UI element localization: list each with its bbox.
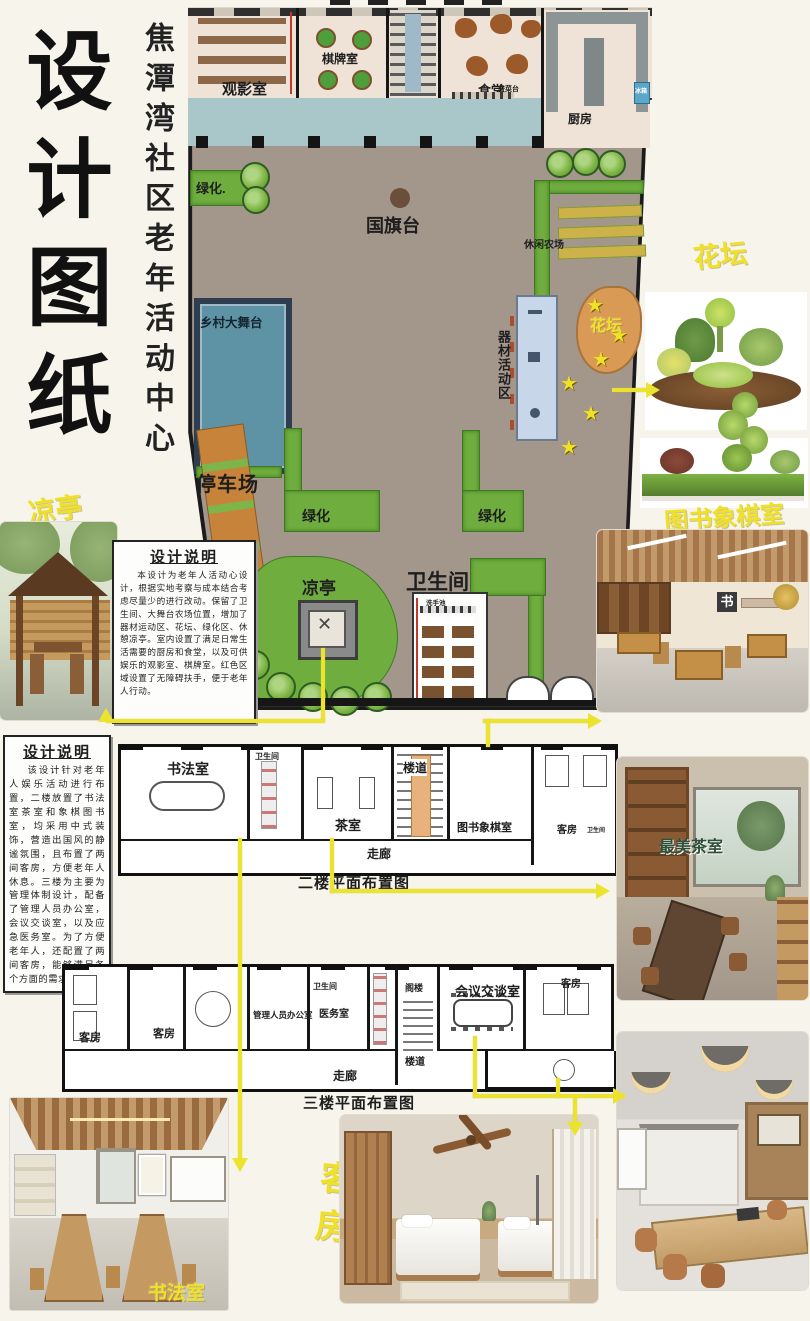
wall	[301, 747, 304, 839]
dome-lamp	[631, 1072, 671, 1094]
f3-meeting-label: 会议交谈室	[455, 981, 520, 1000]
wall	[447, 747, 450, 839]
bookshelf	[597, 582, 671, 634]
tree	[546, 150, 574, 178]
chess-table	[352, 30, 372, 50]
design-note-2: 设计说明 该设计针对老年人娱乐活动进行布置，二楼放置了书法室茶室和象棋图书室，均…	[3, 735, 111, 993]
bed	[396, 1219, 480, 1275]
serving-counter-label: 盛菜台	[498, 84, 519, 94]
wall	[523, 967, 526, 1049]
pavilion-photo	[0, 522, 117, 720]
greenery-label-3: 绿化	[478, 506, 506, 526]
pavilion-bench	[70, 654, 84, 694]
poster-wall	[14, 1154, 56, 1216]
kitchen-counter-top	[546, 12, 648, 24]
pavilion-table	[34, 642, 82, 652]
dome-lamp	[701, 1046, 749, 1072]
hedge	[284, 490, 380, 532]
rug	[400, 1281, 570, 1301]
f3-attic-label: 阁楼	[405, 981, 423, 994]
wood-table	[747, 634, 787, 658]
flowerbed-photo-label: 花坛	[691, 231, 749, 275]
hedge	[470, 558, 546, 596]
canteen-table	[455, 18, 477, 38]
wall	[438, 8, 441, 98]
equipment-area	[516, 295, 558, 441]
connector-line	[612, 388, 646, 392]
shrub	[770, 450, 800, 474]
guest-room-photo	[340, 1115, 598, 1303]
pavilion-roof	[8, 552, 108, 596]
wall	[367, 967, 370, 1049]
wood-table	[675, 650, 723, 680]
connector-line	[321, 648, 325, 722]
pavilion-icon-cross: ✕	[317, 614, 332, 635]
stair-bench	[777, 897, 808, 1000]
extension-room	[485, 1051, 617, 1090]
plant	[693, 362, 753, 388]
connector-line	[556, 1078, 560, 1098]
tea-room-photo: 最美茶室	[617, 757, 808, 1000]
wc-fixtures	[373, 973, 387, 1045]
toilet-stalls	[452, 618, 474, 698]
hedge	[534, 180, 644, 194]
office-chair	[635, 1228, 657, 1252]
canteen-table	[466, 56, 488, 76]
stairs	[403, 997, 433, 1051]
f3-stair-label: 楼道	[405, 1053, 425, 1068]
whiteboard	[170, 1156, 226, 1202]
wall	[437, 967, 440, 1049]
connector-line	[330, 889, 598, 893]
calligraphy-scroll	[138, 1154, 166, 1196]
plant	[705, 298, 735, 328]
curtain-window	[552, 1129, 596, 1279]
bed	[583, 755, 607, 787]
ceiling-fan-hub	[466, 1135, 476, 1145]
slat-ceiling	[10, 1098, 228, 1150]
library-photo: 书	[597, 530, 808, 712]
wardrobe	[344, 1131, 392, 1285]
design-note-1-body: 本设计为老年人活动心设计，根据实地考察与成本结合考虑尽量少的进行改动。保留了卫生…	[120, 569, 248, 698]
tea-chair	[633, 927, 651, 945]
wood-table	[617, 632, 661, 654]
flower-star: ★	[560, 438, 578, 458]
arrow-down-icon	[567, 1122, 583, 1136]
wall	[307, 967, 310, 1049]
arrow-down-icon	[232, 1158, 248, 1172]
basin-counter	[420, 606, 476, 613]
f2-stair-label: 楼道	[403, 759, 427, 776]
design-note-1-title: 设计说明	[120, 546, 248, 567]
window-tree	[737, 801, 785, 851]
cropped-top-caption-marks	[330, 0, 520, 5]
wall	[531, 747, 534, 865]
chess-table	[352, 70, 372, 90]
conference-table	[453, 999, 513, 1027]
parking-label: 停车场	[196, 468, 259, 497]
canteen-table	[490, 14, 512, 34]
tea-table	[317, 777, 333, 809]
chess-room-label: 棋牌室	[322, 50, 358, 67]
window-dashes	[65, 964, 611, 970]
flag-stand	[390, 188, 410, 208]
connector-line	[486, 719, 490, 747]
flowerbed-plan-label: 花坛	[590, 312, 622, 336]
f2-wc2-label: 卫生间	[587, 825, 605, 834]
tree	[572, 148, 600, 176]
office-chair	[701, 1264, 725, 1288]
stool	[106, 1266, 120, 1288]
connector-line	[573, 1098, 577, 1124]
wall	[183, 967, 186, 1049]
stairs-landing	[405, 14, 421, 92]
toilet-stalls	[422, 618, 444, 698]
arrow-right-icon	[596, 883, 610, 899]
wall	[247, 967, 250, 1049]
calligraphy-photo: 书法室	[10, 1098, 228, 1310]
wall	[386, 8, 389, 98]
office-chair	[663, 1254, 687, 1280]
wall-calligraphy: 书	[717, 592, 737, 612]
connector-line	[473, 1094, 615, 1098]
wood-chair	[725, 646, 741, 668]
flower-star: ★	[582, 404, 600, 424]
arrow-right-icon	[613, 1088, 627, 1104]
pavilion-post	[16, 596, 23, 706]
bed	[73, 975, 97, 1005]
wall	[247, 747, 250, 839]
screening-room-seats	[198, 18, 286, 84]
flowerbed-photo-1	[645, 292, 807, 430]
equipment-label: 器材活动区	[494, 330, 513, 430]
canteen-table	[506, 54, 528, 74]
arrow-right-icon	[588, 713, 602, 729]
equipment-item	[528, 310, 542, 314]
f3-office-label: 管理人员办公室	[253, 1009, 313, 1021]
connector-line	[473, 1036, 477, 1098]
screening-room-label: 观影室	[222, 78, 267, 99]
design-poster: 设计图纸 焦潭湾社区老年活动中心 观影室 棋牌室 食堂 盛菜台 冰箱	[0, 0, 810, 1321]
wall	[296, 8, 299, 98]
arrow-right-icon	[646, 382, 660, 398]
chess-table	[318, 70, 338, 90]
f3-guest1-label: 客房	[79, 1029, 101, 1045]
floor2-plan: 书法室 卫生间 茶室 楼道 图书象棋室 客房 卫生间 走廊	[118, 744, 618, 876]
f2-library-label: 图书象棋室	[457, 819, 512, 835]
equipment-item	[530, 408, 540, 418]
flower-star: ★	[560, 374, 578, 394]
kitchen-counter-left	[546, 12, 558, 112]
tea-chair	[641, 967, 659, 985]
f2-tea-label: 茶室	[335, 815, 361, 834]
greenery-label-2: 绿化	[302, 506, 330, 526]
wall	[395, 967, 398, 1085]
connector-line	[238, 838, 242, 1160]
dome-lamp	[755, 1080, 793, 1100]
tea-overlay-label: 最美茶室	[659, 833, 723, 857]
f3-medical-label: 医务室	[319, 1005, 349, 1020]
slat-ceiling	[597, 530, 808, 582]
oval-table	[149, 781, 225, 811]
connector-line	[483, 719, 589, 723]
topiary	[722, 444, 752, 472]
meeting-room-photo	[617, 1032, 808, 1290]
kitchen-island	[584, 38, 604, 106]
projection-screen	[639, 1124, 739, 1206]
nightstand-plant	[482, 1201, 496, 1221]
pavilion-bench	[30, 654, 44, 694]
f2-corridor-label: 走廊	[367, 845, 391, 862]
kitchen-label: 厨房	[568, 110, 592, 127]
greenery-label-1: 绿化.	[196, 178, 226, 197]
tea-table	[359, 777, 375, 809]
farm-label: 休闲农场	[524, 236, 564, 251]
page-subtitle: 焦潭湾社区老年活动中心	[134, 22, 178, 492]
wc-fixtures	[261, 761, 277, 829]
ceiling-light	[70, 1118, 170, 1121]
shrub	[660, 448, 694, 474]
pavilion-plan-label: 凉亭	[302, 574, 336, 599]
accessible-rail	[290, 12, 292, 94]
connector-line	[330, 838, 334, 893]
plant	[717, 326, 723, 352]
f3-guest3-label: 客房	[561, 975, 581, 990]
pillow	[402, 1215, 432, 1227]
floor3-plan: 客房 客房 管理人员办公室 卫生间 医务室 阁楼 会议交谈室 客房 楼道 走廊	[62, 964, 614, 1092]
f2-guest-label: 客房	[557, 821, 577, 836]
design-note-2-title: 设计说明	[9, 741, 105, 762]
laptop	[736, 1207, 759, 1221]
chess-table	[316, 28, 336, 48]
stool	[30, 1268, 44, 1290]
fridge-label: 冰箱	[635, 86, 647, 95]
floor-lamp	[536, 1175, 539, 1225]
flag-stand-label: 国旗台	[366, 212, 420, 238]
wall-art	[757, 1114, 801, 1146]
equipment-item	[528, 352, 540, 362]
tree	[598, 150, 626, 178]
f3-guest2-label: 客房	[153, 1025, 175, 1041]
page-title: 设计图纸	[18, 26, 104, 496]
tree	[362, 682, 392, 712]
flower-star: ★	[592, 350, 610, 370]
village-stage-label: 乡村大舞台	[200, 312, 263, 331]
tea-chair	[721, 917, 739, 935]
bed-round	[195, 991, 231, 1027]
accessible-rail	[416, 598, 418, 698]
connector-line	[106, 719, 325, 723]
calligraphy-photo-label: 书法室	[148, 1278, 205, 1305]
conference-chairs	[451, 1027, 513, 1031]
window	[96, 1148, 136, 1204]
window-dashes	[121, 744, 615, 750]
wall	[65, 1049, 397, 1051]
arrow-up-icon	[98, 708, 114, 722]
design-note-2-body: 该设计针对老年人娱乐活动进行布置，二楼放置了书法室茶室和象棋图书室，均采用中式装…	[9, 764, 105, 987]
wall	[127, 967, 130, 1049]
wall	[121, 839, 533, 841]
tea-chair	[729, 953, 747, 971]
pillow	[504, 1217, 530, 1229]
wall	[391, 747, 394, 839]
f3-corridor-label: 走廊	[333, 1067, 357, 1084]
f2-wc-label: 卫生间	[255, 751, 279, 762]
pavilion-post	[92, 596, 99, 706]
plant	[739, 328, 783, 366]
f2-calligraphy-label: 书法室	[167, 759, 209, 779]
bed	[545, 755, 569, 787]
office-chair	[767, 1200, 787, 1220]
floor3-caption: 三楼平面布置图	[303, 1092, 415, 1113]
wall-medallion	[773, 584, 799, 610]
tree	[242, 186, 270, 214]
f3-wc-label: 卫生间	[313, 981, 337, 992]
design-note-1: 设计说明 本设计为老年人活动心设计，根据实地考察与成本结合考虑尽量少的进行改动。…	[112, 540, 256, 724]
flipchart	[617, 1128, 647, 1190]
